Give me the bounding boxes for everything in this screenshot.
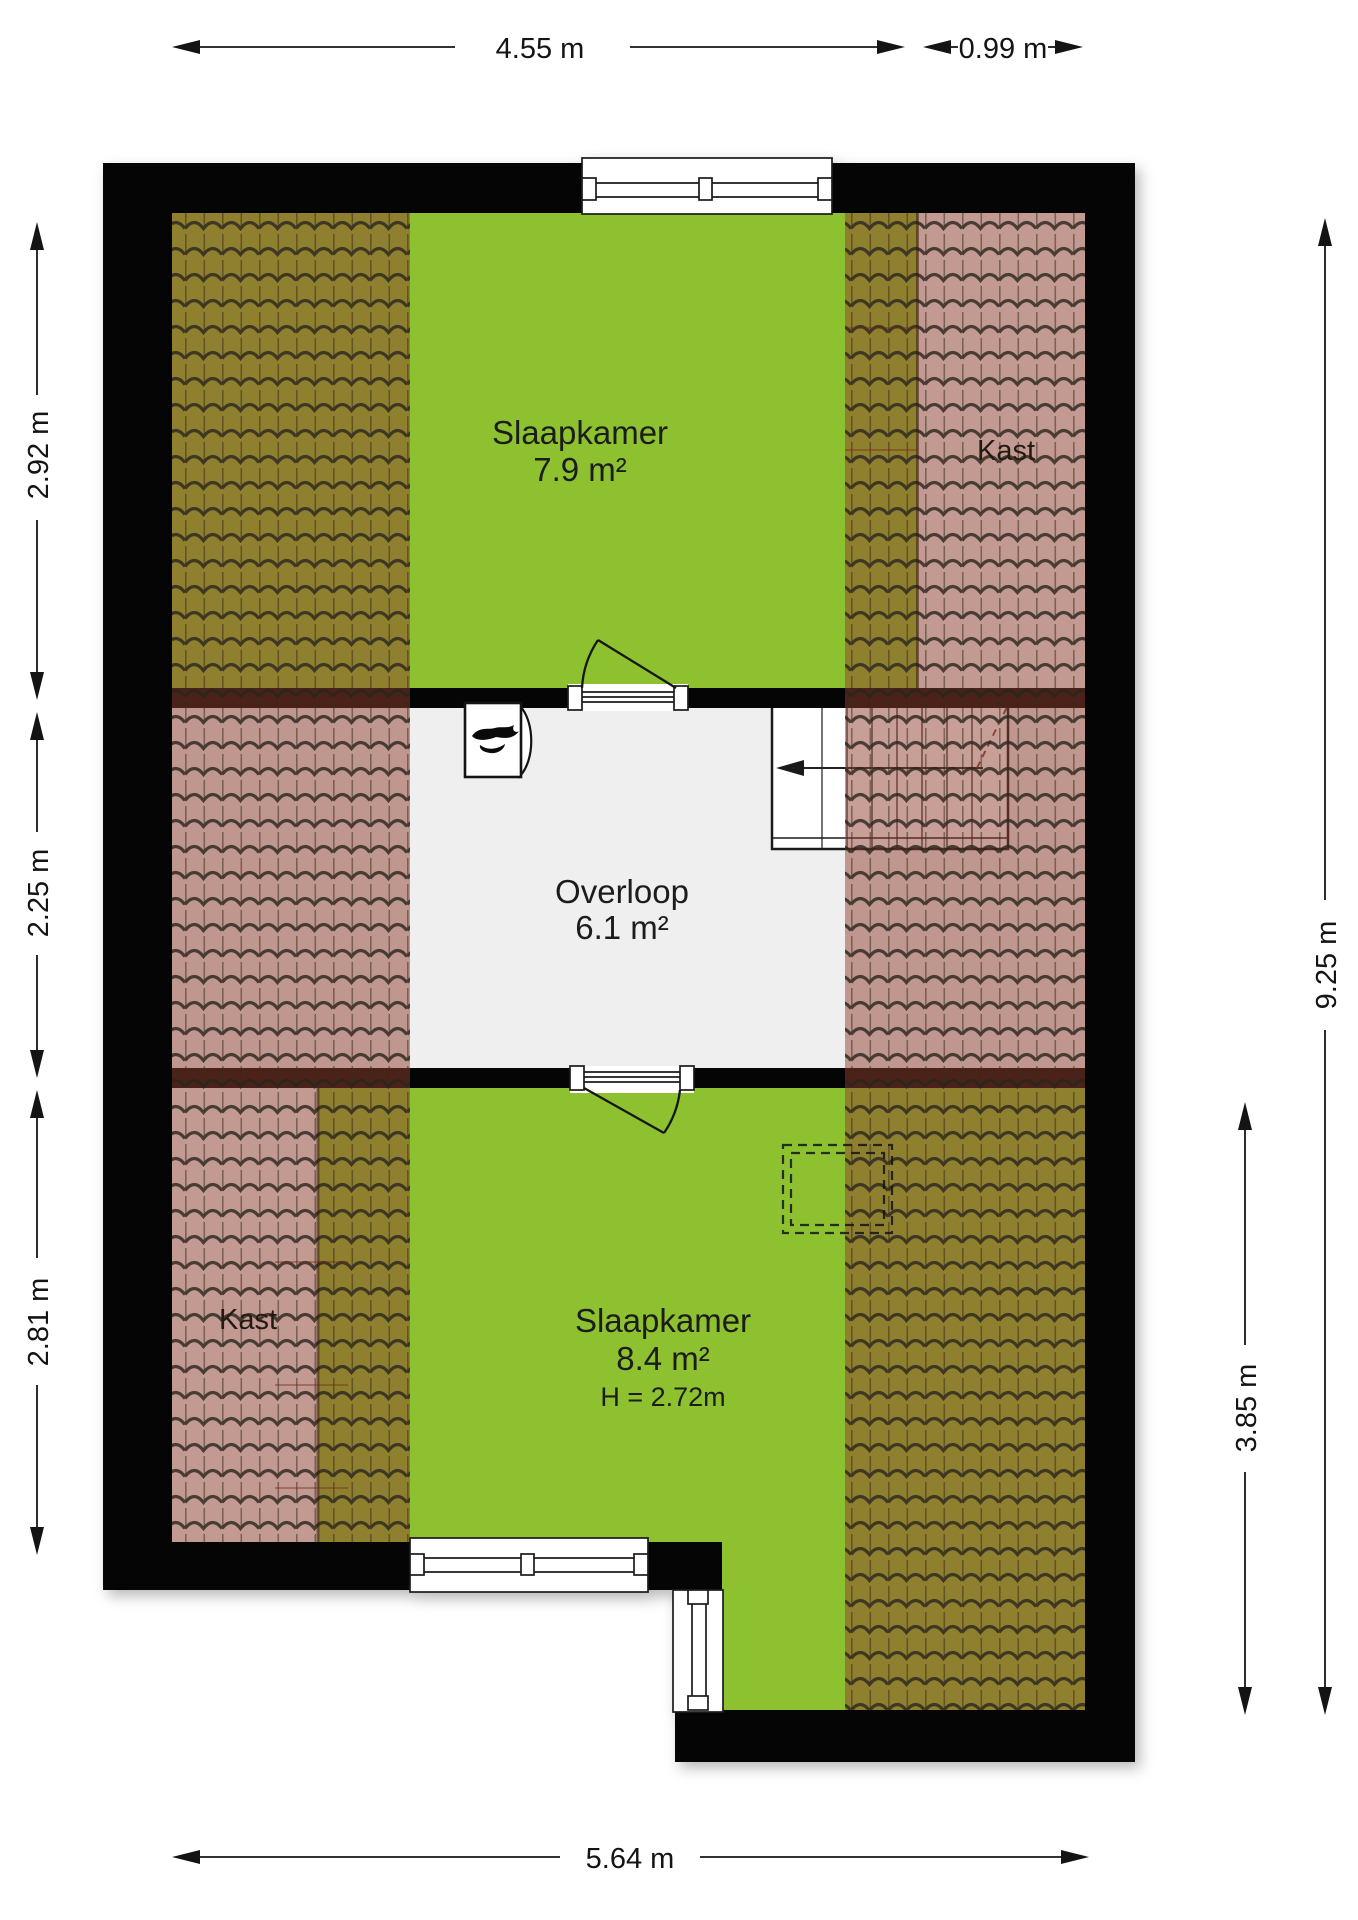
roof-slope-left bbox=[172, 213, 410, 1542]
room-label-bedroom-top: Slaapkamer bbox=[492, 414, 668, 451]
svg-text:3.85 m: 3.85 m bbox=[1231, 1364, 1263, 1453]
dimension-right-lower: 3.85 m bbox=[1231, 1102, 1263, 1715]
roof-slope-right bbox=[845, 213, 1085, 1710]
floorplan-page: Slaapkamer 7.9 m² Kast Overloop 6.1 m² K… bbox=[0, 0, 1358, 1920]
window-top bbox=[582, 158, 832, 214]
room-label-landing: Overloop bbox=[555, 873, 689, 910]
room-area-bedroom-bottom: 8.4 m² bbox=[616, 1340, 710, 1377]
svg-text:9.25 m: 9.25 m bbox=[1311, 921, 1343, 1010]
room-label-bedroom-bottom: Slaapkamer bbox=[575, 1302, 751, 1339]
dimension-bottom-width: 5.64 m bbox=[172, 1843, 1089, 1875]
room-area-landing: 6.1 m² bbox=[575, 909, 669, 946]
closet-label-top-right: Kast bbox=[977, 435, 1035, 467]
dimension-top-right-width: 0.99 m bbox=[923, 33, 1083, 65]
dimension-left-upper: 2.92 m bbox=[23, 222, 55, 700]
boiler-unit bbox=[465, 703, 531, 777]
floorplan-drawing: Slaapkamer 7.9 m² Kast Overloop 6.1 m² K… bbox=[0, 0, 1358, 1920]
svg-text:0.99 m: 0.99 m bbox=[959, 33, 1048, 65]
svg-text:2.81 m: 2.81 m bbox=[23, 1278, 55, 1367]
building bbox=[103, 158, 1135, 1762]
svg-text:5.64 m: 5.64 m bbox=[586, 1843, 675, 1875]
window-bottom bbox=[410, 1538, 648, 1592]
svg-text:2.25 m: 2.25 m bbox=[23, 849, 55, 938]
dimension-left-lower: 2.81 m bbox=[23, 1090, 55, 1555]
dimension-top-width: 4.55 m bbox=[172, 33, 905, 65]
svg-text:4.55 m: 4.55 m bbox=[496, 33, 585, 65]
room-height-bedroom-bottom: H = 2.72m bbox=[600, 1382, 725, 1412]
room-area-bedroom-top: 7.9 m² bbox=[533, 451, 627, 488]
dimension-left-middle: 2.25 m bbox=[23, 712, 55, 1078]
closet-label-bottom-left: Kast bbox=[219, 1304, 277, 1336]
svg-text:2.92 m: 2.92 m bbox=[23, 411, 55, 500]
dimension-right-total: 9.25 m bbox=[1311, 218, 1343, 1715]
window-side bbox=[673, 1590, 723, 1712]
